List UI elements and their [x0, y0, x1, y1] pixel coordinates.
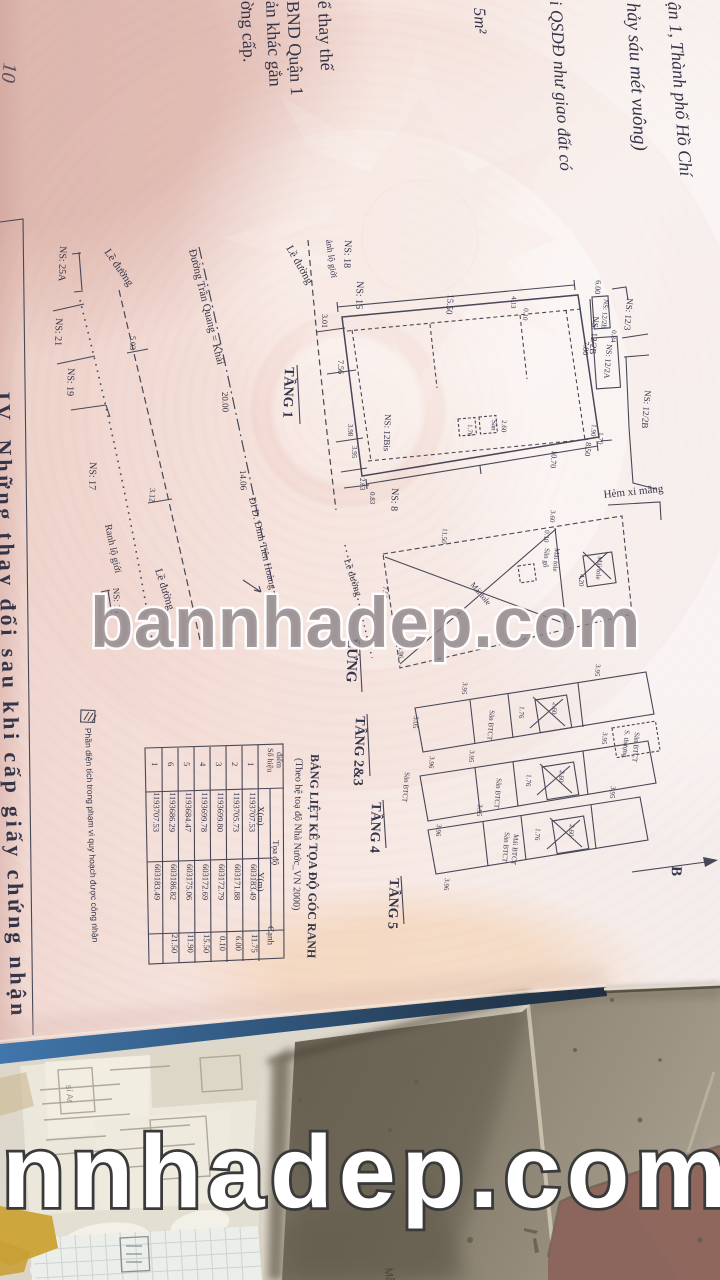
svg-text:bannhadep.com: bannhadep.com	[90, 584, 641, 663]
svg-text:sí Ar: sí Ar	[64, 1084, 75, 1103]
svg-text:nnhadep.com: nnhadep.com	[2, 1114, 720, 1229]
svg-text:Mẫu: Mẫu	[382, 1267, 396, 1280]
